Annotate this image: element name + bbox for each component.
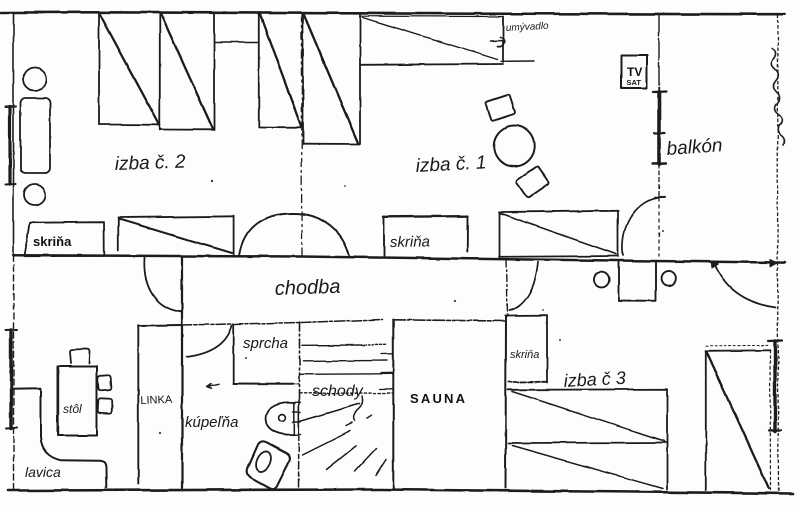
svg-text:sprcha: sprcha: [243, 335, 288, 352]
svg-text:SAT: SAT: [627, 78, 642, 87]
svg-text:skriňa: skriňa: [33, 234, 72, 249]
svg-text:balkón: balkón: [666, 135, 723, 160]
svg-text:izba č. 1: izba č. 1: [415, 152, 487, 177]
svg-text:izba č. 2: izba č. 2: [114, 152, 186, 175]
svg-text:lavica: lavica: [25, 464, 61, 480]
svg-text:SAUNA: SAUNA: [410, 391, 467, 406]
svg-text:TV: TV: [627, 65, 642, 79]
svg-text:umývadlo: umývadlo: [506, 21, 550, 34]
svg-text:izba č 3: izba č 3: [563, 368, 626, 391]
svg-text:LINKA: LINKA: [140, 394, 173, 407]
svg-text:schody: schody: [312, 383, 364, 400]
svg-text:skriňa: skriňa: [510, 349, 539, 361]
svg-text:stôl: stôl: [63, 402, 82, 416]
svg-text:kúpeľňa: kúpeľňa: [185, 414, 238, 431]
svg-text:chodba: chodba: [274, 276, 340, 300]
svg-text:skriňa: skriňa: [390, 233, 430, 251]
